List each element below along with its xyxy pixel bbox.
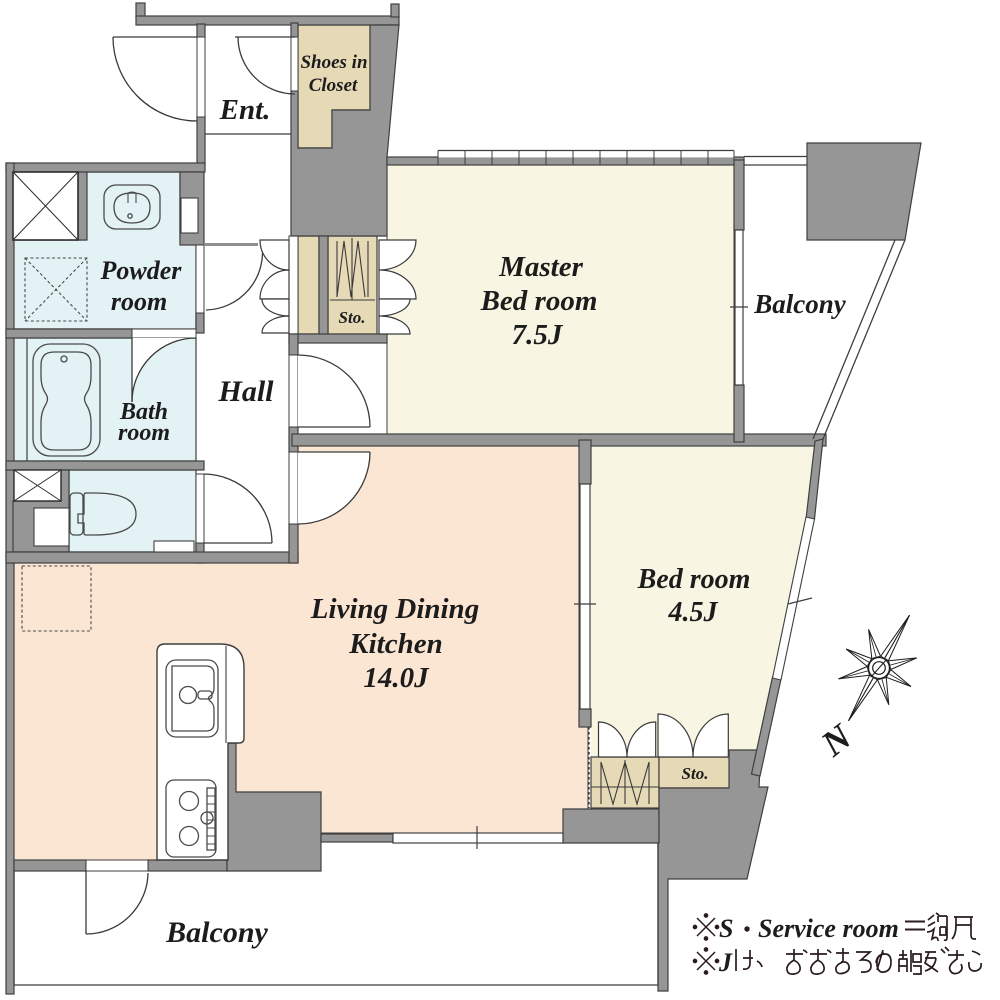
svg-text:Kitchen: Kitchen [348, 628, 442, 660]
svg-text:4.5J: 4.5J [668, 597, 719, 628]
svg-text:Service room: Service room [758, 914, 899, 943]
svg-text:Bed room: Bed room [480, 285, 598, 317]
svg-text:14.0J: 14.0J [363, 662, 430, 694]
svg-text:Hall: Hall [217, 375, 274, 408]
svg-text:Ent.: Ent. [219, 94, 271, 126]
svg-text:Living Dining: Living Dining [310, 593, 479, 625]
svg-text:Balcony: Balcony [165, 916, 268, 949]
svg-text:S: S [719, 914, 733, 943]
svg-text:Sto.: Sto. [682, 764, 709, 783]
svg-text:N: N [813, 715, 860, 764]
svg-text:Powder: Powder [100, 256, 183, 285]
svg-text:Shoes in: Shoes in [300, 52, 367, 73]
svg-text:Master: Master [498, 251, 584, 283]
svg-text:7.5J: 7.5J [512, 319, 564, 351]
svg-text:Bed room: Bed room [637, 564, 751, 595]
svg-text:Balcony: Balcony [753, 289, 847, 319]
svg-text:room: room [111, 287, 167, 316]
svg-text:Sto.: Sto. [339, 308, 366, 327]
svg-text:room: room [118, 420, 170, 446]
svg-text:J: J [718, 948, 733, 977]
svg-text:Closet: Closet [309, 75, 358, 96]
